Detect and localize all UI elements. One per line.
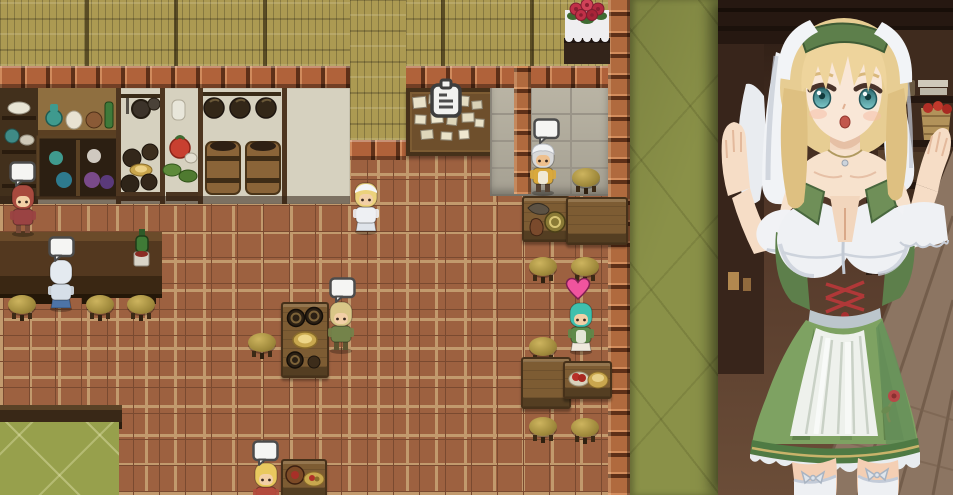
npc-patron-blue[interactable] bbox=[46, 258, 76, 312]
stool bbox=[126, 293, 156, 320]
speech-bubble-icon bbox=[329, 277, 356, 307]
npc-redhead-villager[interactable] bbox=[8, 183, 38, 237]
map-entities-layer bbox=[0, 0, 718, 495]
stool bbox=[7, 293, 37, 320]
speech-bubble-icon bbox=[533, 118, 560, 148]
table-cask bbox=[281, 459, 327, 495]
stool bbox=[570, 416, 600, 443]
stool bbox=[85, 293, 115, 320]
table-tankards bbox=[281, 302, 329, 378]
stool bbox=[247, 331, 277, 358]
speech-bubble-icon bbox=[252, 440, 279, 470]
table-food bbox=[563, 361, 612, 399]
speech-bubble-icon bbox=[48, 236, 75, 266]
character-portrait bbox=[718, 0, 953, 495]
npc-man-green[interactable] bbox=[326, 300, 356, 354]
stool bbox=[571, 166, 601, 193]
stool bbox=[528, 415, 558, 442]
table-chef-pot bbox=[522, 196, 570, 242]
table-chef-side bbox=[566, 197, 628, 245]
notice-board-icon bbox=[427, 78, 465, 124]
npc-girl-teal[interactable] bbox=[566, 301, 596, 355]
speech-bubble-icon bbox=[9, 161, 36, 191]
npc-chef[interactable] bbox=[528, 142, 558, 196]
npc-waitress-sprite[interactable] bbox=[351, 181, 381, 235]
character-portrait-panel bbox=[718, 0, 953, 495]
game-screen bbox=[0, 0, 953, 495]
heart-icon bbox=[565, 277, 591, 305]
stool bbox=[528, 255, 558, 282]
game-map bbox=[0, 0, 718, 495]
